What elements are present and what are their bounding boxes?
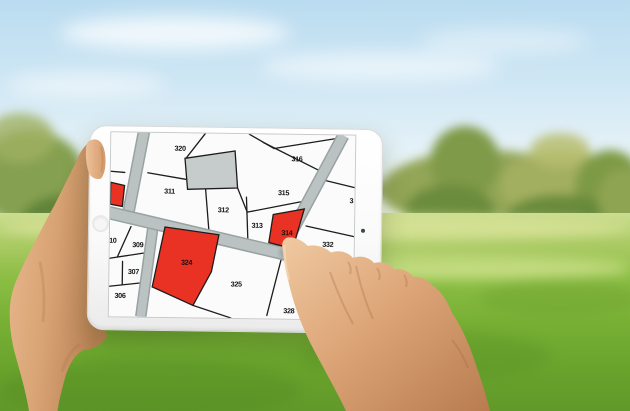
parcel-label: 325 [231, 279, 243, 288]
home-button[interactable] [92, 215, 109, 232]
grass-patch [300, 330, 550, 380]
parcel-label: 312 [218, 205, 230, 214]
selected-parcel-edge[interactable] [110, 182, 124, 206]
parcel-label: 332 [322, 240, 334, 249]
parcel-label: 313 [251, 221, 263, 230]
grass-patch [350, 262, 630, 280]
parcel-label: 10 [109, 236, 117, 245]
scene: 320 316 311 315 312 313 314 3 332 10 309… [0, 0, 630, 411]
tablet-device: 320 316 311 315 312 313 314 3 332 10 309… [87, 125, 384, 334]
parcel-label: 3 [350, 196, 354, 205]
parcel-label: 316 [291, 154, 303, 163]
parcel-label: 320 [175, 144, 187, 153]
parcel-label: 324 [181, 258, 193, 267]
tablet-screen[interactable]: 320 316 311 315 312 313 314 3 332 10 309… [109, 132, 356, 319]
parcel-label: 315 [278, 188, 290, 197]
parcel-label: 307 [128, 267, 140, 276]
parcel-label: 306 [114, 291, 126, 300]
grass-patch [480, 280, 630, 316]
parcel-label: 311 [164, 187, 175, 196]
parcel-label: 328 [283, 306, 295, 315]
grass-patch [0, 360, 300, 411]
cadastral-map[interactable]: 320 316 311 315 312 313 314 3 332 10 309… [109, 132, 356, 319]
parcel-label: 314 [281, 228, 293, 237]
front-camera-icon [361, 229, 365, 233]
parcel-label: 309 [132, 240, 144, 249]
